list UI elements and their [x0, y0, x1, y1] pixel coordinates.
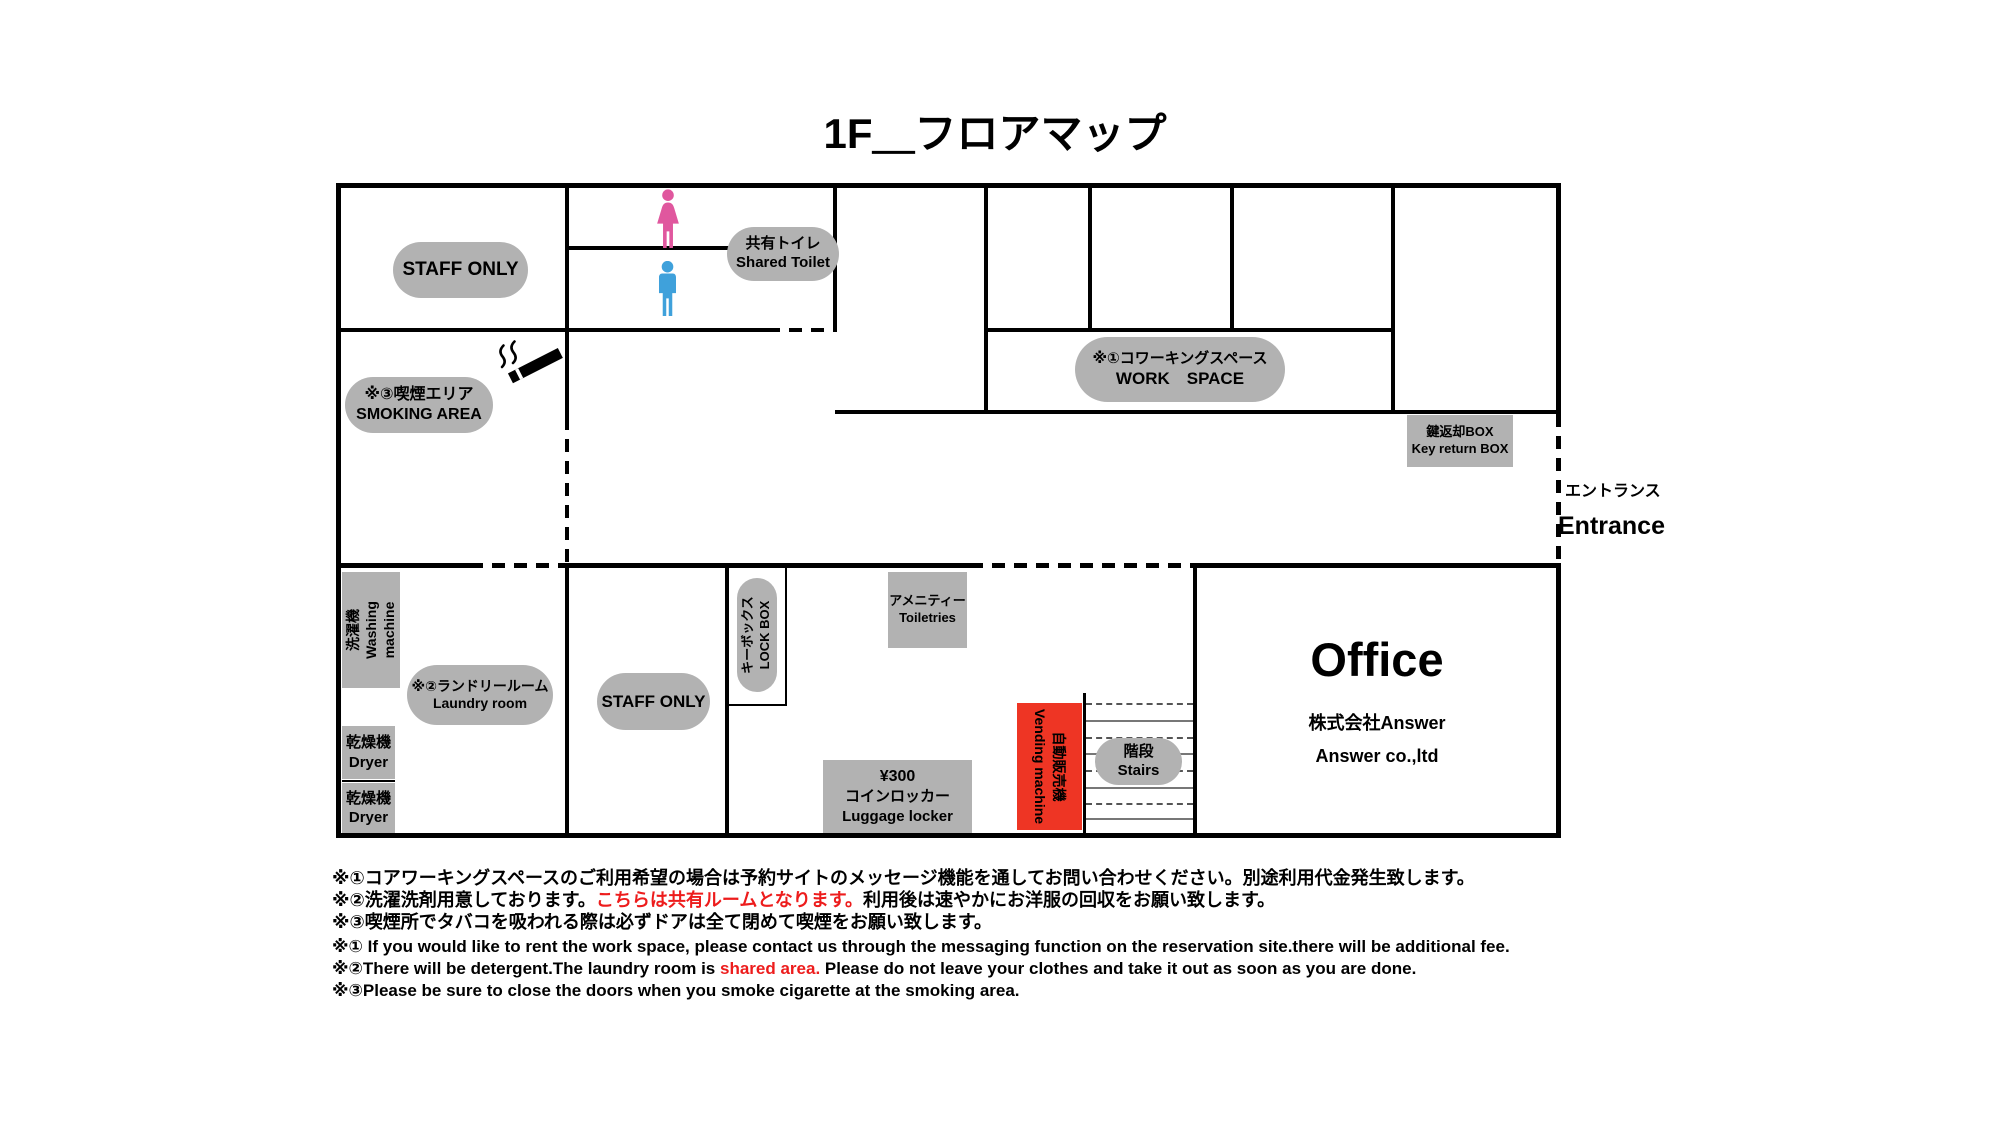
- wall-segment: [563, 563, 970, 568]
- note-en-2-post: Please do not leave your clothes and tak…: [820, 959, 1416, 978]
- office-title: Office: [1197, 632, 1557, 687]
- stair-step-line: [1086, 787, 1193, 789]
- key-return-jp: 鍵返却BOX: [1426, 424, 1493, 441]
- wall-dashed: [767, 328, 835, 332]
- note-jp-2-text: ※②洗濯洗剤用意しております。: [332, 890, 596, 910]
- toiletries-en: Toiletries: [899, 610, 956, 627]
- stairs-left-line: [1083, 693, 1086, 835]
- note-en-3: ※③Please be sure to close the doors when…: [332, 981, 1020, 1001]
- lock-box-jp: キーボックス: [740, 596, 757, 674]
- wall-segment: [1391, 183, 1395, 414]
- key-return-box: 鍵返却BOX Key return BOX: [1407, 415, 1513, 467]
- toiletries-jp: アメニティー: [889, 593, 966, 610]
- wall-bottom: [336, 833, 1561, 838]
- staff-only-lower-label: STAFF ONLY: [597, 673, 710, 730]
- female-icon: [653, 189, 683, 249]
- wall-dashed: [970, 563, 1197, 568]
- wall-segment: [725, 563, 729, 835]
- luggage-locker-jp: コインロッカー: [845, 787, 950, 807]
- lock-box-label: キーボックス LOCK BOX: [737, 578, 777, 692]
- coworking-en: WORK SPACE: [1116, 368, 1244, 389]
- smoking-area-jp: ※③喫煙エリア: [364, 385, 473, 405]
- shared-toilet-en: Shared Toilet: [736, 254, 830, 273]
- lockbox-outline: [727, 704, 787, 706]
- staff-only-upper-label: STAFF ONLY: [393, 242, 528, 298]
- vending-machine-label: 自動販売機 Vending machine: [1017, 703, 1082, 830]
- wall-dashed: [470, 563, 565, 568]
- toiletries-box: アメニティー Toiletries: [888, 572, 967, 648]
- wall-left: [336, 183, 341, 838]
- floor-map-page: 1F＿フロアマップ: [0, 0, 2000, 1125]
- stairs-en: Stairs: [1118, 762, 1160, 781]
- vending-machine-jp: 自動販売機: [1050, 732, 1068, 802]
- wall-booth-divider: [1088, 183, 1092, 332]
- office-company-jp: 株式会社Answer: [1197, 709, 1557, 735]
- note-jp-3: ※③喫煙所でタバコを吸われる際は必ずドアは全て閉めて喫煙をお願い致します。: [332, 908, 992, 934]
- note-en-2-red: shared area.: [720, 959, 820, 978]
- wall-segment: [984, 183, 988, 414]
- stair-step-line: [1086, 803, 1193, 805]
- note-en-2: ※②There will be detergent.The laundry ro…: [332, 959, 1416, 979]
- entrance-label-en: Entrance: [1558, 512, 1665, 541]
- stair-step-line: [1086, 818, 1193, 820]
- luggage-locker-en: Luggage locker: [842, 807, 953, 827]
- note-en-2-text: ※②There will be detergent.The laundry ro…: [332, 959, 720, 978]
- note-jp-3-text: ※③喫煙所でタバコを吸われる際は必ずドアは全て閉めて喫煙をお願い致します。: [332, 912, 992, 932]
- staff-only-lower-text: STAFF ONLY: [602, 691, 706, 712]
- staff-only-upper-text: STAFF ONLY: [402, 258, 518, 282]
- lock-box-en: LOCK BOX: [757, 601, 774, 670]
- dryer1-jp: 乾燥機: [346, 733, 391, 753]
- entrance-label-jp: エントランス: [1565, 477, 1661, 501]
- lockbox-outline: [785, 565, 787, 706]
- note-jp-1-text: ※①コアワーキングスペースのご利用希望の場合は予約サイトのメッセージ機能を通して…: [332, 868, 1475, 888]
- page-title: 1F＿フロアマップ: [695, 100, 1295, 161]
- coworking-jp: ※①コワーキングスペース: [1092, 350, 1267, 369]
- wall-segment: [565, 563, 569, 835]
- dryer-divider-line: [342, 780, 395, 782]
- laundry-room-jp: ※②ランドリールーム: [411, 678, 548, 696]
- note-en-1-text: ※① If you would like to rent the work sp…: [332, 937, 1510, 956]
- dryer-box-1: 乾燥機 Dryer: [342, 726, 395, 779]
- note-en-1: ※① If you would like to rent the work sp…: [332, 937, 1510, 957]
- laundry-room-en: Laundry room: [433, 695, 527, 713]
- wall-segment: [1195, 563, 1561, 568]
- dryer-box-2: 乾燥機 Dryer: [342, 783, 395, 833]
- stairs-label: 階段 Stairs: [1095, 738, 1182, 785]
- wall-segment: [986, 328, 1393, 332]
- dryer2-jp: 乾燥機: [346, 789, 391, 809]
- wall-top: [336, 183, 1561, 188]
- cigarette-icon: [486, 331, 570, 387]
- shared-toilet-jp: 共有トイレ: [745, 235, 820, 254]
- laundry-room-label: ※②ランドリールーム Laundry room: [407, 665, 553, 725]
- key-return-en: Key return BOX: [1412, 441, 1509, 458]
- male-icon: [654, 261, 681, 317]
- stair-step-line: [1086, 703, 1193, 705]
- note-jp-2-red: こちらは共有ルームとなります。: [596, 890, 863, 910]
- dryer2-en: Dryer: [349, 808, 388, 828]
- wall-segment: [835, 410, 1561, 414]
- shared-toilet-label: 共有トイレ Shared Toilet: [727, 227, 839, 281]
- luggage-locker-box: ¥300 コインロッカー Luggage locker: [823, 760, 972, 833]
- entrance-dashed-line: [1556, 414, 1561, 565]
- office-company-en: Answer co.,ltd: [1197, 746, 1557, 767]
- wall-dashed: [565, 417, 569, 563]
- washing-machine-jp: 洗濯機: [344, 609, 362, 651]
- stair-step-line: [1086, 720, 1193, 722]
- stairs-jp: 階段: [1123, 743, 1153, 762]
- office-room-label: Office 株式会社Answer Answer co.,ltd: [1197, 632, 1557, 767]
- smoking-area-label: ※③喫煙エリア SMOKING AREA: [345, 377, 493, 433]
- wall-segment: [336, 563, 470, 568]
- note-en-3-text: ※③Please be sure to close the doors when…: [332, 981, 1020, 1000]
- vending-machine-en: Vending machine: [1031, 709, 1049, 824]
- wall-booth-divider: [1230, 183, 1234, 332]
- washing-machine-label: 洗濯機 Washing machine: [342, 572, 400, 688]
- smoking-area-en: SMOKING AREA: [356, 405, 482, 425]
- coworking-space-label: ※①コワーキングスペース WORK SPACE: [1075, 337, 1285, 402]
- washing-machine-en: Washing machine: [362, 572, 398, 688]
- dryer1-en: Dryer: [349, 753, 388, 773]
- wall-right: [1556, 183, 1561, 414]
- luggage-locker-price: ¥300: [880, 767, 916, 788]
- note-jp-2-post: 利用後は速やかにお洋服の回収をお願い致します。: [863, 890, 1275, 910]
